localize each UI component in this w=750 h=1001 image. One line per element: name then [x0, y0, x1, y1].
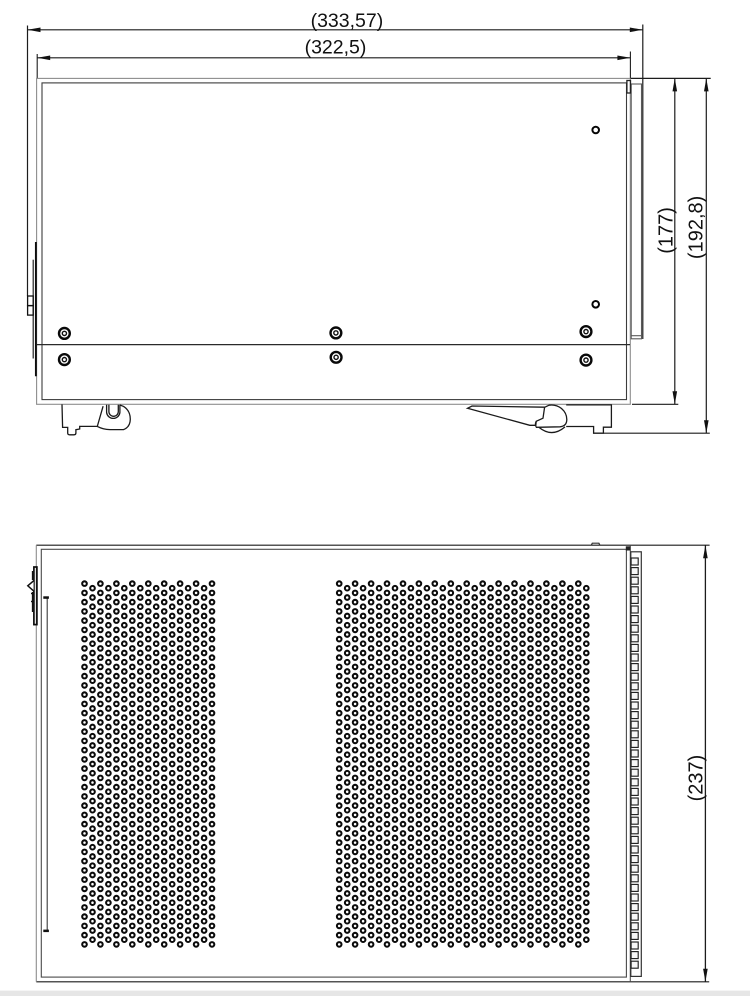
svg-text:(177): (177)	[655, 207, 677, 254]
svg-text:(333,57): (333,57)	[311, 10, 384, 32]
svg-text:(322,5): (322,5)	[305, 37, 367, 59]
svg-text:(192,8): (192,8)	[686, 196, 708, 259]
svg-text:(237): (237)	[686, 755, 708, 802]
